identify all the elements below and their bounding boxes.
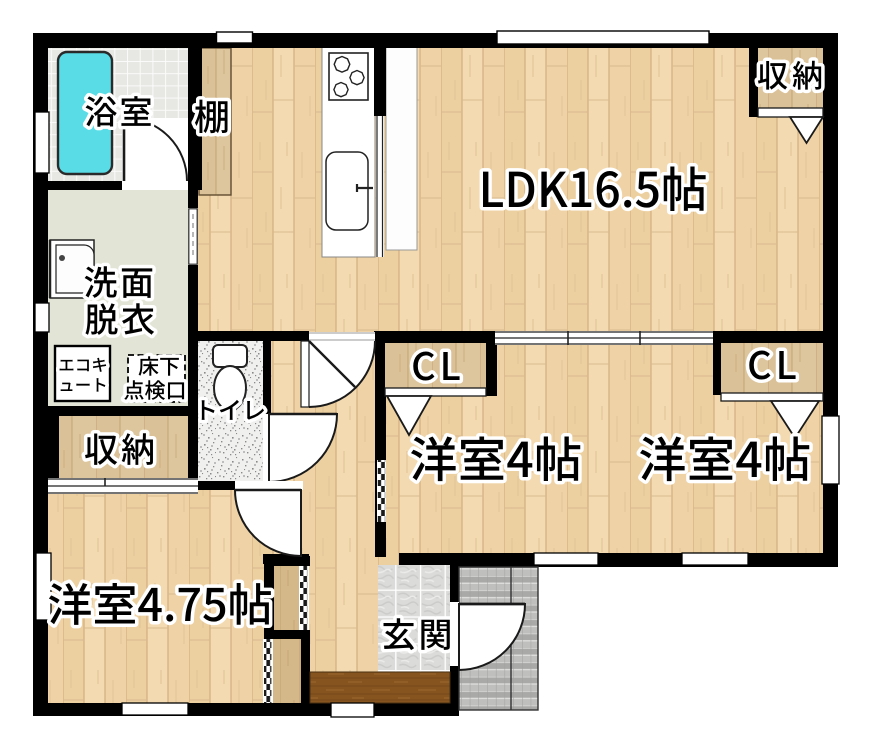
svg-text:ュート: ュート bbox=[58, 372, 108, 396]
svg-text:収納: 収納 bbox=[84, 423, 158, 472]
svg-text:点検口: 点検口 bbox=[124, 375, 187, 405]
svg-text:収納: 収納 bbox=[757, 51, 827, 96]
svg-text:棚: 棚 bbox=[194, 89, 230, 141]
svg-text:洋室4帖: 洋室4帖 bbox=[638, 421, 811, 491]
svg-text:洋室4.75帖: 洋室4.75帖 bbox=[47, 569, 272, 634]
svg-text:CL: CL bbox=[747, 335, 801, 390]
svg-text:トイレ: トイレ bbox=[194, 391, 266, 426]
svg-text:CL: CL bbox=[411, 336, 465, 391]
svg-text:玄関: 玄関 bbox=[382, 608, 456, 657]
svg-text:脱衣: 脱衣 bbox=[85, 293, 158, 342]
svg-text:LDK16.5帖: LDK16.5帖 bbox=[479, 151, 708, 221]
svg-text:浴室: 浴室 bbox=[85, 86, 155, 134]
svg-text:洋室4帖: 洋室4帖 bbox=[409, 421, 582, 491]
